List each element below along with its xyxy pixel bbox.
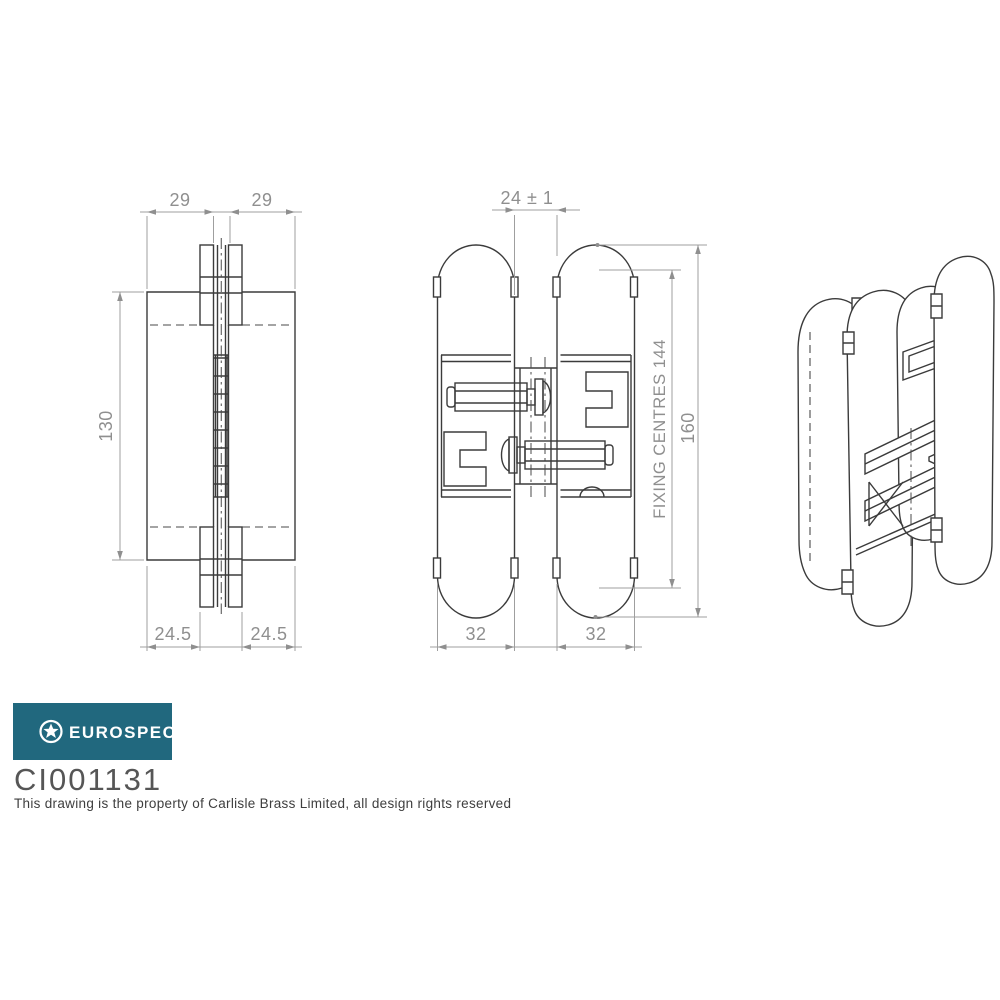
front-tab-top-right [229,245,243,325]
iso-view [798,256,994,626]
arrowhead [205,209,214,215]
dim-24-1: 24 ± 1 [501,188,554,208]
leader-dot-top [596,243,600,247]
arrowhead [669,579,675,588]
dim-24-5-left: 24.5 [154,624,191,644]
iso-clip [931,518,942,542]
arrowhead [669,270,675,279]
arrowhead [230,209,239,215]
arrowhead [191,644,200,650]
arrowhead [147,644,156,650]
arrowhead [506,207,515,213]
arrowhead [557,207,566,213]
front-tab-bottom-right [229,527,243,607]
copyright-notice: This drawing is the property of Carlisle… [14,796,511,811]
clip [434,277,441,297]
dim-29-right: 29 [251,190,272,210]
arrowhead [117,551,123,560]
front-right-leaf-outline [242,292,295,560]
dim-32-left: 32 [465,624,486,644]
arm-bulb [543,381,551,413]
mech-centre-lines [531,357,545,499]
clip [553,277,560,297]
iso-clip [931,294,942,318]
eurospec-logo: EUROSPEC [13,703,172,760]
dim-32-right: 32 [585,624,606,644]
clip [511,558,518,578]
iso-clip [842,570,853,594]
arm-neck [517,447,525,463]
front-tab-top-left [200,245,214,325]
clip [553,558,560,578]
arrowhead [117,292,123,301]
arm-flange [535,379,543,415]
technical-drawing: 29 29 130 24.5 24.5 [0,0,1000,1000]
arrowhead [557,644,566,650]
dim-24-5-right: 24.5 [250,624,287,644]
front-view-dimensions: 29 29 130 24.5 24.5 [96,190,302,651]
dim-fixing-centres-144: FIXING CENTRES 144 [651,339,669,519]
front-left-leaf-outline [147,292,200,560]
arrowhead [695,608,701,617]
dim-line-130 [112,292,144,560]
clip [631,558,638,578]
dim-160: 160 [678,412,698,444]
iso-front-right-capsule [934,256,994,584]
arrowhead [147,209,156,215]
arrowhead [286,644,295,650]
leader-dot-bottom [594,615,598,619]
clip [434,558,441,578]
arrowhead [506,644,515,650]
iso-clip [843,332,854,354]
arrowhead [695,245,701,254]
arrowhead [438,644,447,650]
side-right-body [557,245,635,618]
arrowhead [242,644,251,650]
drawing-sheet: 29 29 130 24.5 24.5 [0,0,1000,1000]
dim-130: 130 [96,410,116,442]
dim-29-left: 29 [169,190,190,210]
arrowhead [286,209,295,215]
front-tab-bottom-left [200,527,214,607]
clip [631,277,638,297]
brand-name: EUROSPEC [69,723,172,742]
side-view [434,245,638,618]
front-view [147,238,295,614]
arrowhead [626,644,635,650]
product-code: CI001131 [14,762,162,798]
